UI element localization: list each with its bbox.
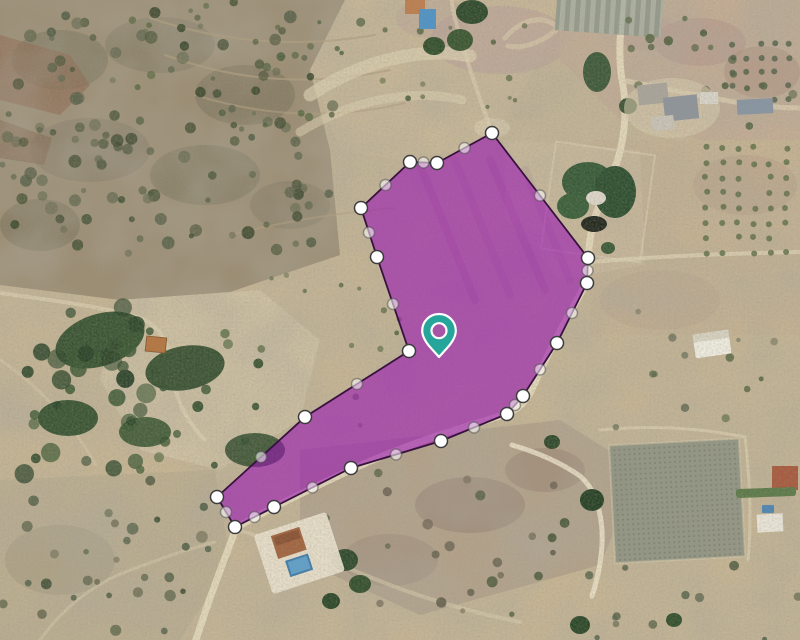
map-pin-glyph xyxy=(422,314,456,357)
location-pin-icon[interactable] xyxy=(422,314,456,357)
pin-layer xyxy=(0,0,800,640)
satellite-map-viewport[interactable] xyxy=(0,0,800,640)
